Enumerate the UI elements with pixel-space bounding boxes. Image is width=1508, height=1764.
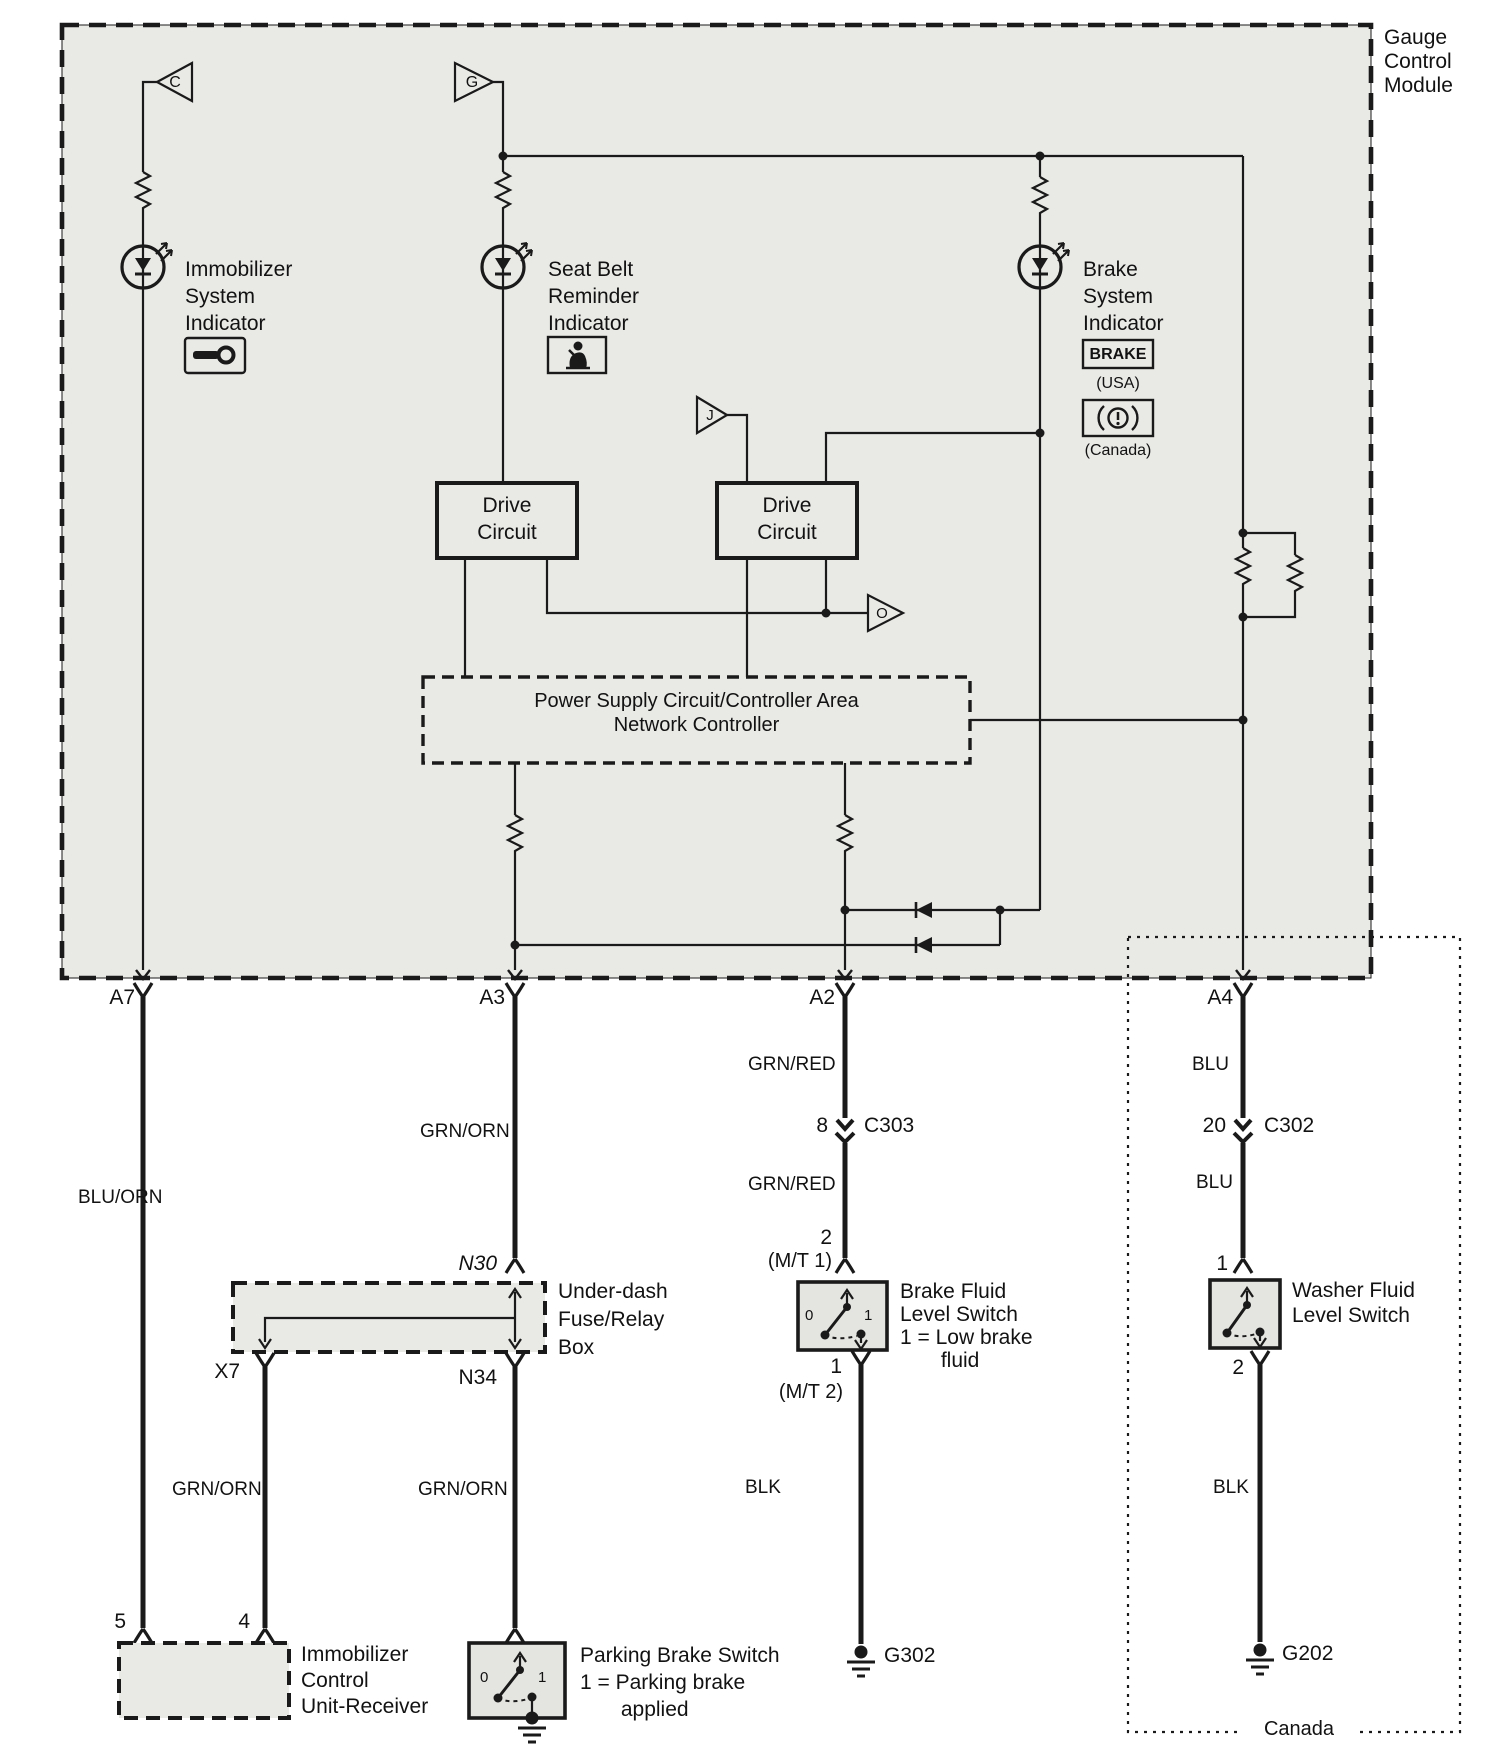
brake-usa-caption: (USA)	[1083, 374, 1153, 395]
ground-label-g302: G302	[884, 1642, 935, 1669]
underdash-label: Under-dash Fuse/Relay Box	[558, 1278, 668, 1362]
bfls-pos0: 0	[805, 1306, 813, 1326]
pin-label-a3: A3	[450, 984, 505, 1011]
pin-label-a2: A2	[780, 984, 835, 1011]
power-supply-label: Power Supply Circuit/Controller Area Net…	[423, 689, 970, 737]
immobilizer-receiver-label: Immobilizer Control Unit-Receiver	[301, 1642, 428, 1720]
parking-pos0: 0	[480, 1668, 488, 1688]
ground-g302	[847, 1646, 875, 1677]
drive-circuit-1-label: Drive Circuit	[437, 492, 577, 546]
wire-color-a2-upper: GRN/RED	[748, 1053, 836, 1078]
wire-color-bfls-ground: BLK	[745, 1476, 781, 1501]
brake-usa-icon-text: BRAKE	[1083, 345, 1153, 366]
wire-color-n34: GRN/ORN	[418, 1478, 508, 1503]
ground-g202	[1246, 1644, 1274, 1675]
pin-label-x7: X7	[200, 1358, 240, 1385]
canada-region-box	[1128, 937, 1460, 1732]
parking-switch-label: Parking Brake Switch 1 = Parking brake a…	[580, 1642, 780, 1723]
module-title: Gauge Control Module	[1384, 26, 1453, 98]
brake-canada-caption: (Canada)	[1076, 441, 1160, 462]
wire-color-a4-upper: BLU	[1192, 1053, 1229, 1078]
wire-color-wfls-ground: BLK	[1213, 1476, 1249, 1501]
bfls-pos1: 1	[864, 1306, 872, 1326]
washer-fluid-level-switch	[1210, 1280, 1280, 1348]
wfls-label: Washer Fluid Level Switch	[1292, 1278, 1415, 1328]
wire-color-a4-lower: BLU	[1196, 1171, 1233, 1196]
pin-label-n34: N34	[440, 1364, 497, 1391]
pin-label-a4: A4	[1178, 984, 1233, 1011]
connector-c302-pin: 20	[1178, 1112, 1226, 1139]
triangle-letter-c: C	[160, 73, 190, 94]
bfls-pin-bottom: 1	[798, 1353, 842, 1380]
immobilizer-indicator-label: Immobilizer System Indicator	[185, 256, 292, 337]
wire-color-a7: BLU/ORN	[78, 1186, 162, 1211]
bfls-pin-bottom-note: (M/T 2)	[763, 1379, 843, 1405]
imm-pin-5: 5	[96, 1608, 126, 1635]
connector-c303-name: C303	[864, 1112, 914, 1139]
immobilizer-receiver-box	[119, 1643, 289, 1718]
canada-region-label: Canada	[1243, 1716, 1355, 1742]
triangle-letter-j: J	[696, 406, 724, 426]
wfls-pin-bottom: 2	[1214, 1354, 1244, 1381]
pin-label-n30: N30	[440, 1250, 497, 1277]
seat-belt-indicator-label: Seat Belt Reminder Indicator	[548, 256, 639, 337]
wire-color-x7: GRN/ORN	[172, 1478, 262, 1503]
wire-color-a3: GRN/ORN	[420, 1120, 510, 1145]
pin-label-a7: A7	[80, 984, 135, 1011]
wiring-diagram-page: Gauge Control Module Immobilizer System …	[0, 0, 1508, 1764]
ground-label-g202: G202	[1282, 1640, 1333, 1667]
drive-circuit-2-label: Drive Circuit	[717, 492, 857, 546]
triangle-letter-o: O	[866, 604, 898, 624]
brake-indicator-label: Brake System Indicator	[1083, 256, 1164, 337]
imm-pin-4: 4	[220, 1608, 250, 1635]
bfls-pin-top-note: (M/T 1)	[752, 1248, 832, 1274]
parking-pos1: 1	[538, 1668, 546, 1688]
wfls-pin-top: 1	[1198, 1250, 1228, 1277]
connector-c302-name: C302	[1264, 1112, 1314, 1139]
connector-c303-pin: 8	[790, 1112, 828, 1139]
bfls-label: Brake Fluid Level Switch 1 = Low brake f…	[900, 1280, 1033, 1372]
wire-color-a2-lower: GRN/RED	[748, 1173, 836, 1198]
triangle-letter-g: G	[455, 73, 489, 94]
